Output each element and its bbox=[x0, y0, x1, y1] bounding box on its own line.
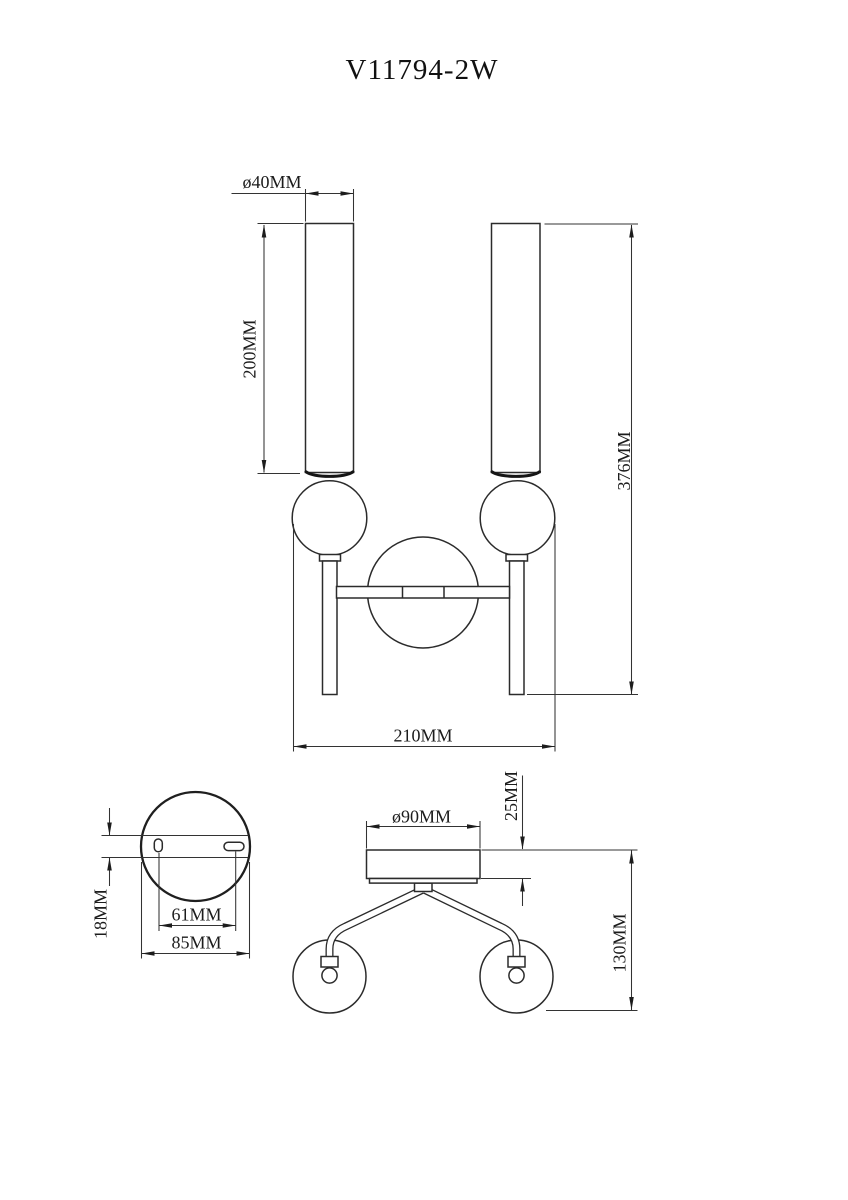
dim-overall-height: 376MM bbox=[527, 224, 638, 695]
dim-label-overall-height: 376MM bbox=[614, 431, 634, 490]
dim-label-canopy-depth: 25MM bbox=[501, 771, 521, 821]
arrowhead bbox=[237, 951, 250, 956]
mounting-slot-right bbox=[224, 842, 244, 850]
arrowhead bbox=[306, 191, 319, 196]
arrowhead bbox=[294, 744, 307, 749]
left-arm bbox=[330, 890, 423, 958]
left-stem bbox=[323, 561, 338, 695]
backplate-circle bbox=[141, 792, 250, 901]
dim-label-hole-spacing: 61MM bbox=[171, 905, 221, 925]
arrowhead bbox=[542, 744, 555, 749]
arrowhead bbox=[223, 923, 236, 928]
arrowhead bbox=[142, 951, 155, 956]
dim-canopy-depth: 25MM bbox=[481, 771, 531, 906]
dim-label-canopy-diameter: ø90MM bbox=[392, 807, 451, 827]
arrowhead bbox=[629, 225, 634, 238]
arrowhead bbox=[107, 823, 112, 836]
dim-shade-diameter: ø40MM bbox=[232, 172, 354, 222]
left-collar bbox=[320, 555, 341, 562]
technical-drawing: V11794-2W ø40MM bbox=[0, 0, 848, 1200]
drawing-title: V11794-2W bbox=[346, 54, 499, 86]
right-arm bbox=[425, 890, 517, 958]
canopy-drum bbox=[367, 850, 481, 879]
left-tube-shade bbox=[306, 224, 354, 473]
dim-label-bracket-height: 18MM bbox=[91, 889, 111, 939]
right-stem bbox=[510, 561, 525, 695]
dim-label-overall-width: 210MM bbox=[393, 726, 452, 746]
dim-canopy-diameter: ø90MM bbox=[367, 807, 481, 849]
right-socket bbox=[508, 957, 525, 968]
arrowhead bbox=[159, 923, 172, 928]
keyhole-slot-left bbox=[154, 839, 162, 852]
dim-label-plate-diameter: 85MM bbox=[171, 933, 221, 953]
dim-hole-spacing: 61MM bbox=[159, 852, 236, 932]
crossbar bbox=[337, 587, 510, 599]
arrowhead bbox=[262, 225, 267, 238]
left-bulb bbox=[322, 968, 337, 983]
arrowhead bbox=[629, 851, 634, 864]
arrowhead bbox=[341, 191, 354, 196]
canopy-lip bbox=[370, 879, 478, 884]
right-globe bbox=[480, 481, 555, 556]
top-view: ø90MM 25MM 130MM bbox=[293, 771, 638, 1013]
drawing-sheet: V11794-2W ø40MM bbox=[0, 0, 848, 1200]
arrowhead bbox=[629, 997, 634, 1010]
arrowhead bbox=[520, 879, 525, 892]
arrowhead bbox=[520, 837, 525, 850]
left-socket bbox=[321, 957, 338, 968]
dim-shade-length: 200MM bbox=[240, 224, 304, 474]
right-bulb bbox=[509, 968, 524, 983]
arrowhead bbox=[107, 858, 112, 871]
dim-label-projection: 130MM bbox=[610, 913, 630, 972]
dim-label-shade-diameter: ø40MM bbox=[242, 172, 301, 192]
dim-label-shade-length: 200MM bbox=[240, 319, 260, 378]
left-globe bbox=[292, 481, 367, 556]
dim-bracket-height: 18MM bbox=[91, 808, 112, 939]
right-tube-shade bbox=[492, 224, 541, 473]
arrowhead bbox=[262, 460, 267, 473]
backplate-view: 18MM 61MM 85MM bbox=[91, 792, 251, 959]
front-view: ø40MM 200MM 376MM 210MM bbox=[232, 172, 639, 752]
canopy-stub bbox=[415, 883, 433, 891]
arrowhead bbox=[629, 682, 634, 695]
right-collar bbox=[506, 555, 528, 562]
arrowhead bbox=[367, 824, 380, 829]
arrowhead bbox=[467, 824, 480, 829]
